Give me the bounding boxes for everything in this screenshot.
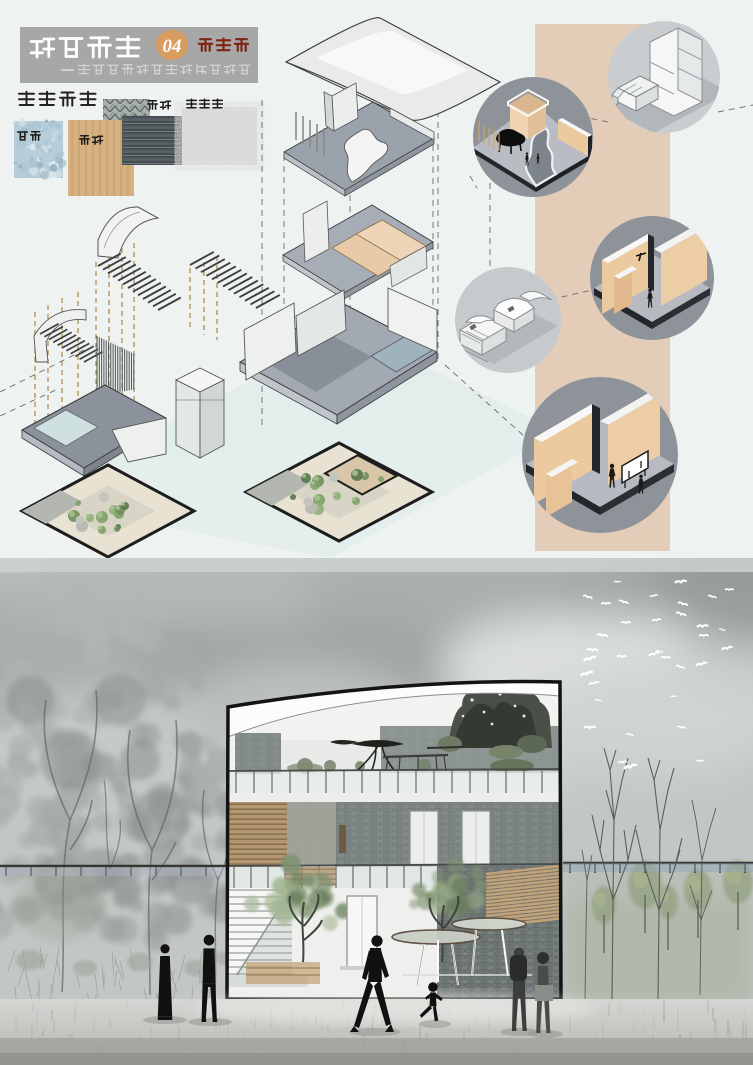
svg-text:04: 04: [163, 36, 182, 57]
